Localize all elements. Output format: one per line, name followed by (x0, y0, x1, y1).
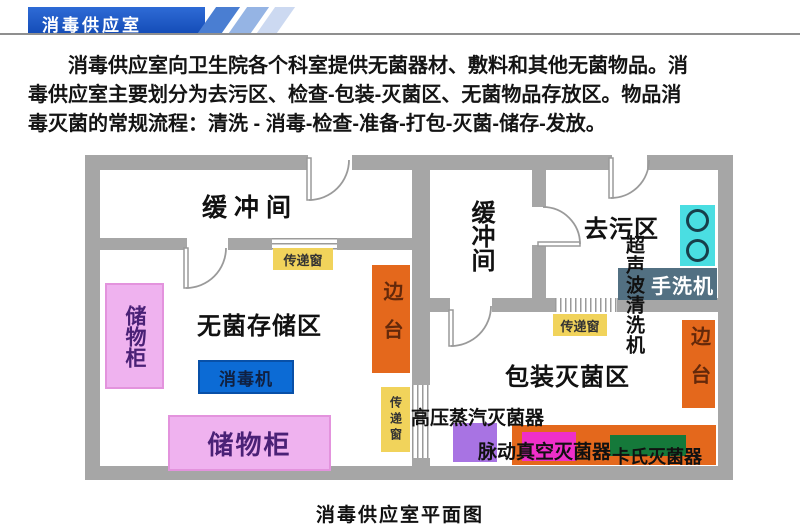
storage-cabinet-bottom: 储物柜 (168, 415, 331, 471)
door-leaf (184, 248, 188, 288)
storage-cabinet-label: 储物柜 (207, 425, 291, 462)
intro-paragraph: 消毒供应室向卫生院各个科室提供无菌器材、敷料和其他无菌物品。消 毒供应室主要划分… (28, 52, 780, 139)
wall-segment (228, 238, 272, 250)
disinfector-machine: 消毒机 (198, 360, 294, 394)
room-label-decontamination: 去污区 (584, 209, 659, 244)
door (184, 248, 226, 288)
page: 消毒供应室 消毒供应室向卫生院各个科室提供无菌器材、敷料和其他无菌物品。消 毒供… (0, 0, 800, 531)
room-label-buffer-left: 缓冲间 (202, 188, 298, 224)
ultrasonic-cleaner-label: 超声波清洗机 (624, 235, 643, 355)
pass-window-label: 传递窗 (283, 250, 322, 269)
intro-line: 消毒供应室向卫生院各个科室提供无菌器材、敷料和其他无菌物品。消 (28, 52, 780, 81)
pass-window-label: 传递窗 (560, 316, 599, 335)
door-arc (611, 160, 649, 198)
storage-cabinet-label: 储物柜 (124, 305, 145, 368)
door-arc (451, 306, 491, 346)
door (307, 158, 349, 200)
door-arc (309, 160, 349, 200)
door (538, 207, 580, 246)
wall-segment (352, 155, 612, 170)
door (449, 306, 491, 346)
side-table-left: 边台 (372, 265, 410, 373)
wash-sink-unit (680, 205, 715, 266)
pass-window-top: 传递窗 (273, 248, 333, 270)
wall-segment (85, 155, 100, 480)
pulse-vacuum-sterilizer-label: 脉动真空灭菌器 (478, 437, 611, 464)
room-label-packaging: 包装灭菌区 (505, 357, 630, 392)
hand-washer-label: 手洗机 (651, 270, 714, 299)
wall-segment (492, 298, 555, 312)
wall-segment (100, 238, 187, 250)
room-label-buffer-right: 缓冲间 (468, 200, 492, 272)
plan-caption: 消毒供应室平面图 (0, 500, 800, 527)
door-arc (543, 207, 580, 244)
wall-segment (337, 238, 412, 250)
side-table-label: 边台 (381, 281, 401, 357)
side-table-right: 边台 (682, 320, 715, 408)
storage-cabinet-left: 储物柜 (105, 283, 164, 389)
wall-segment (412, 170, 430, 385)
intro-line: 毒灭菌的常规流程：清洗 - 消毒-检查-准备-打包-灭菌-储存-发放。 (28, 110, 780, 139)
room-label-sterile-storage: 无菌存储区 (197, 306, 322, 341)
side-table-label: 边台 (689, 326, 709, 402)
disinfector-label: 消毒机 (219, 365, 273, 390)
cassette-sterilizer-label: 卡氏灭菌器 (612, 443, 702, 469)
wall-segment (718, 155, 733, 480)
pass-window-label: 传递窗 (390, 396, 402, 444)
door-arc (186, 248, 226, 288)
autoclave-label: 高压蒸汽灭菌器 (411, 403, 544, 430)
door (609, 158, 649, 198)
sink-basin-icon (686, 239, 709, 262)
wall-segment (412, 458, 430, 466)
wall-segment (532, 245, 546, 298)
pass-window-middle: 传递窗 (381, 387, 410, 452)
pass-window-hatch (555, 298, 617, 312)
wall-segment (430, 298, 450, 312)
sink-basin-icon (686, 209, 709, 232)
pass-window-right: 传递窗 (553, 314, 607, 336)
intro-line: 毒供应室主要划分为去污区、检查-包装-灭菌区、无菌物品存放区。物品消 (28, 81, 780, 110)
door-leaf (449, 310, 453, 346)
wall-segment (532, 170, 546, 207)
header-divider (0, 33, 800, 35)
wall-segment (85, 155, 308, 170)
